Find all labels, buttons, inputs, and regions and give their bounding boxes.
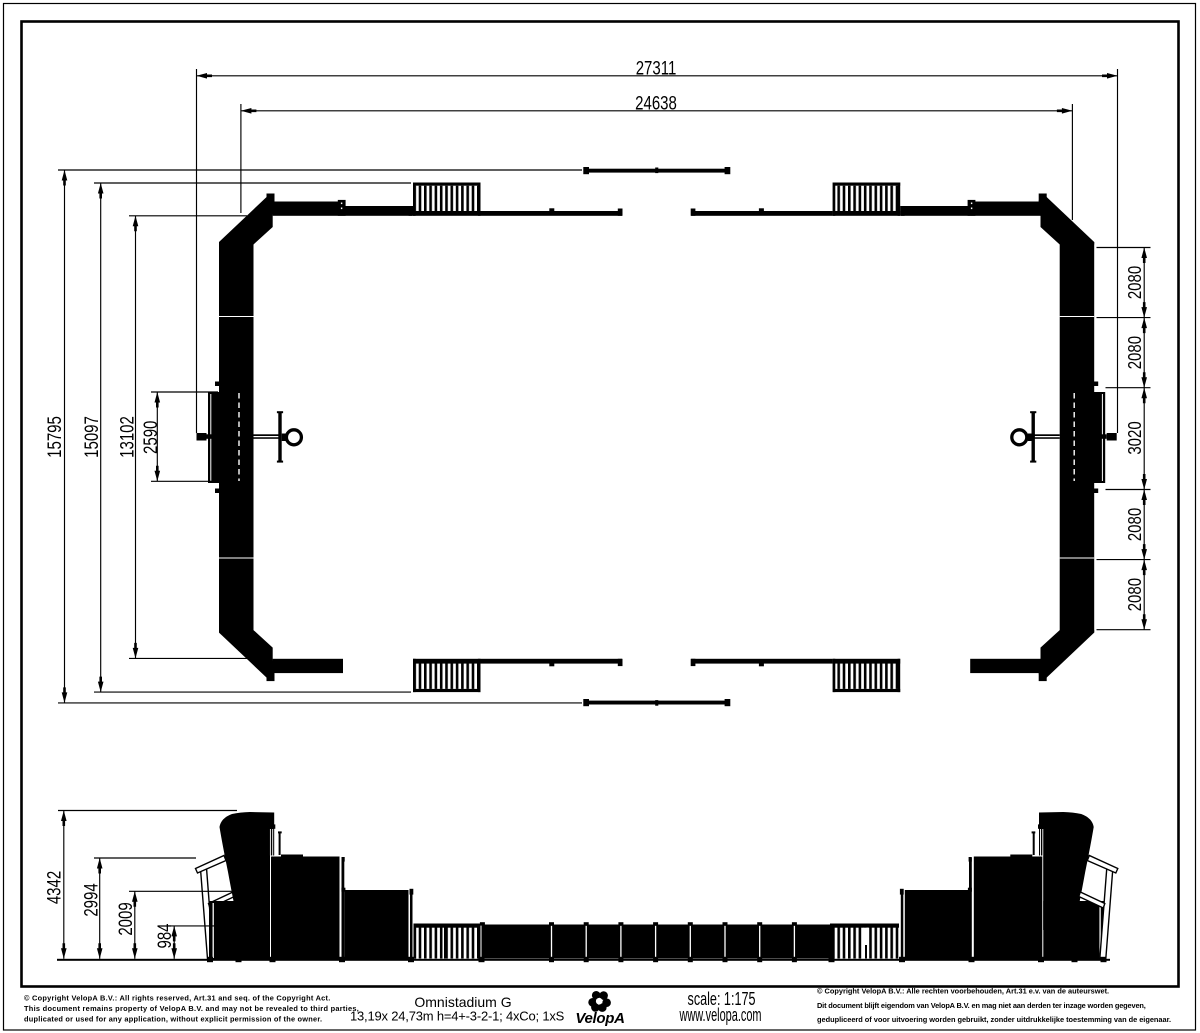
svg-text:Dit document blijft eigendom v: Dit document blijft eigendom van VelopA … (817, 1001, 1146, 1010)
svg-text:15097: 15097 (80, 416, 103, 458)
svg-text:2009: 2009 (114, 902, 137, 935)
svg-text:2080: 2080 (1124, 508, 1145, 541)
svg-text:This document remains property: This document remains property of VelopA… (24, 1004, 359, 1013)
svg-text:VelopA: VelopA (575, 1010, 624, 1027)
svg-text:www.velopa.com: www.velopa.com (679, 1005, 762, 1026)
svg-text:3020: 3020 (1124, 421, 1145, 454)
svg-text:2080: 2080 (1124, 266, 1145, 299)
svg-text:4342: 4342 (43, 871, 66, 904)
svg-text:© Copyright VelopA B.V.: All r: © Copyright VelopA B.V.: All rights rese… (24, 994, 331, 1003)
svg-text:2080: 2080 (1124, 336, 1145, 369)
svg-text:27311: 27311 (636, 56, 677, 79)
svg-text:13,19x 24,73m h=4+-3-2-1; 4xCo: 13,19x 24,73m h=4+-3-2-1; 4xCo; 1xS (350, 1009, 565, 1024)
svg-text:15795: 15795 (43, 416, 66, 458)
svg-text:13102: 13102 (116, 416, 139, 458)
svg-text:2080: 2080 (1124, 578, 1145, 611)
svg-text:2590: 2590 (139, 420, 162, 454)
svg-text:2994: 2994 (80, 883, 103, 917)
svg-text:duplicated or used for any app: duplicated or used for any application, … (24, 1015, 322, 1024)
svg-text:24638: 24638 (635, 92, 677, 115)
svg-text:© Copyright VelopA B.V.: Alle: © Copyright VelopA B.V.: Alle rechten vo… (817, 987, 1109, 996)
svg-text:984: 984 (153, 923, 176, 948)
svg-text:gedupliceerd of voor uitvoerin: gedupliceerd of voor uitvoering worden g… (817, 1015, 1171, 1024)
